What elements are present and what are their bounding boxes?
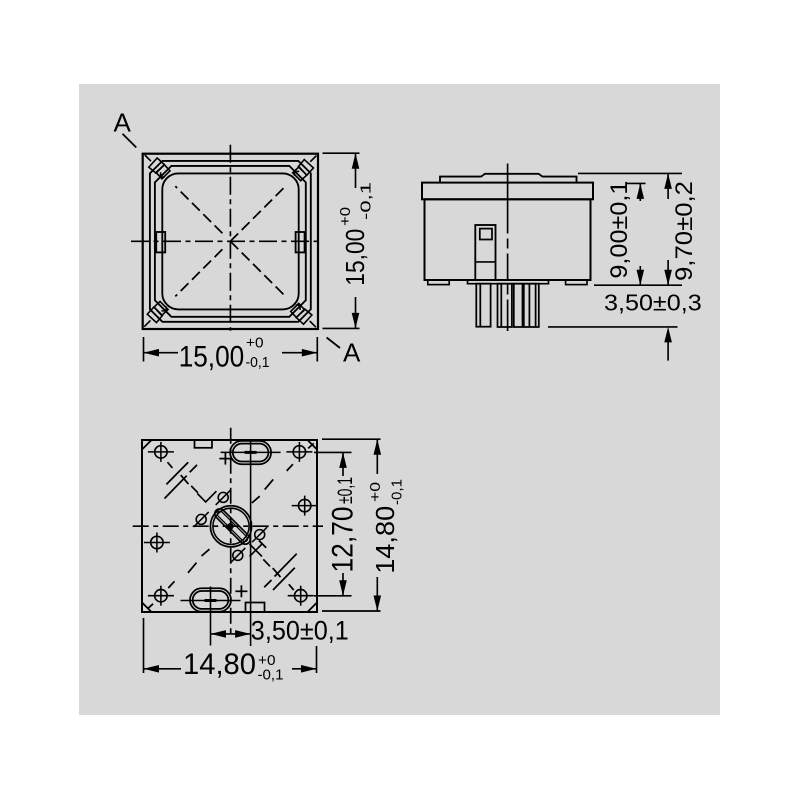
svg-text:15,00: 15,00 [179,341,245,374]
svg-text:-0,1: -0,1 [258,667,284,684]
svg-text:A: A [343,338,361,368]
svg-text:+0: +0 [337,207,354,226]
svg-text:15,00: 15,00 [340,229,370,286]
svg-text:3,50±0,1: 3,50±0,1 [251,616,349,646]
svg-text:12,70: 12,70 [326,507,359,573]
svg-text:+0: +0 [246,334,264,351]
svg-text:3,50±0,3: 3,50±0,3 [604,289,702,315]
svg-text:9,70±0,2: 9,70±0,2 [671,181,698,281]
svg-text:-0,1: -0,1 [358,182,375,220]
svg-text:+0: +0 [367,482,384,502]
svg-text:±0,1: ±0,1 [334,477,357,504]
svg-text:14,80: 14,80 [183,648,256,681]
svg-text:14,80: 14,80 [370,506,400,574]
svg-text:A: A [114,108,132,138]
svg-text:9,00±0,1: 9,00±0,1 [606,181,633,279]
svg-text:-0,1: -0,1 [389,479,406,505]
svg-text:-0,1: -0,1 [246,354,270,371]
